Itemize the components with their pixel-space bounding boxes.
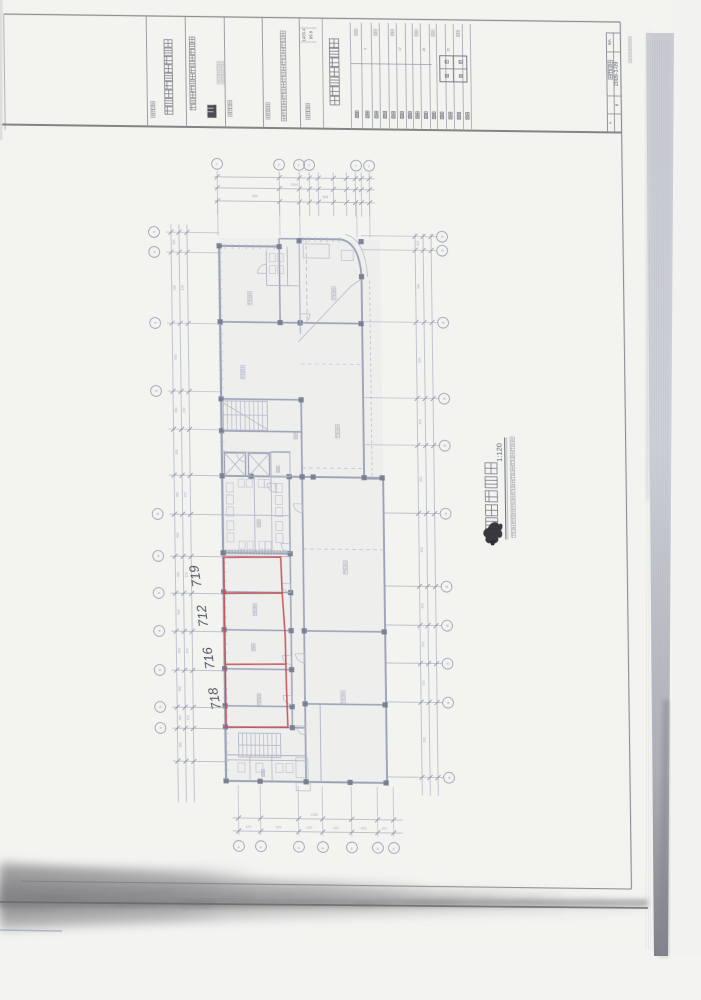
svg-text:150: 150 bbox=[183, 492, 187, 498]
svg-text:360: 360 bbox=[175, 449, 179, 455]
svg-text:390: 390 bbox=[423, 737, 427, 743]
svg-text:360: 360 bbox=[178, 686, 182, 692]
svg-text:360: 360 bbox=[176, 532, 180, 538]
svg-text:360: 360 bbox=[179, 742, 183, 748]
svg-text:5: 5 bbox=[364, 48, 368, 50]
svg-text:360: 360 bbox=[177, 609, 181, 615]
svg-text:99.9: 99.9 bbox=[308, 30, 313, 39]
svg-text:390: 390 bbox=[418, 419, 422, 425]
svg-text:26: 26 bbox=[422, 47, 426, 51]
svg-text:390: 390 bbox=[422, 680, 426, 686]
svg-text:150: 150 bbox=[181, 285, 185, 291]
svg-text:800: 800 bbox=[252, 194, 258, 198]
svg-text:360: 360 bbox=[177, 648, 181, 654]
svg-text:390: 390 bbox=[421, 603, 425, 609]
svg-text:420: 420 bbox=[307, 826, 313, 830]
svg-text:360: 360 bbox=[173, 285, 177, 291]
svg-text:360: 360 bbox=[172, 239, 176, 245]
svg-text:360: 360 bbox=[174, 354, 178, 360]
svg-text:420: 420 bbox=[276, 825, 282, 829]
svg-text:6A: 6A bbox=[607, 38, 612, 45]
svg-text:17: 17 bbox=[398, 47, 402, 51]
svg-text:390: 390 bbox=[416, 240, 420, 246]
svg-text:150: 150 bbox=[182, 407, 186, 413]
svg-text:2280: 2280 bbox=[311, 813, 319, 817]
svg-text:1455.4: 1455.4 bbox=[301, 28, 306, 42]
svg-text:360: 360 bbox=[174, 407, 178, 413]
svg-text:390: 390 bbox=[420, 547, 424, 553]
svg-text:360: 360 bbox=[175, 492, 179, 498]
svg-text:508: 508 bbox=[322, 195, 328, 199]
svg-text:35: 35 bbox=[447, 48, 451, 52]
svg-text:420: 420 bbox=[246, 825, 252, 829]
svg-text:150: 150 bbox=[186, 715, 190, 721]
svg-text:360: 360 bbox=[176, 572, 180, 578]
svg-text:2009-1-09: 2009-1-09 bbox=[614, 62, 620, 87]
svg-text:420: 420 bbox=[333, 826, 339, 830]
svg-text:420: 420 bbox=[361, 827, 367, 831]
svg-text:1:120: 1:120 bbox=[495, 443, 504, 462]
svg-text:150: 150 bbox=[185, 648, 189, 654]
svg-text:1044: 1044 bbox=[290, 183, 298, 187]
svg-text:360: 360 bbox=[178, 715, 182, 721]
svg-text:712: 712 bbox=[194, 604, 212, 628]
svg-text:390: 390 bbox=[417, 283, 421, 289]
svg-text:390: 390 bbox=[418, 357, 422, 363]
svg-text:390: 390 bbox=[419, 476, 423, 482]
svg-text:390: 390 bbox=[421, 641, 425, 647]
svg-text:420: 420 bbox=[382, 827, 388, 831]
